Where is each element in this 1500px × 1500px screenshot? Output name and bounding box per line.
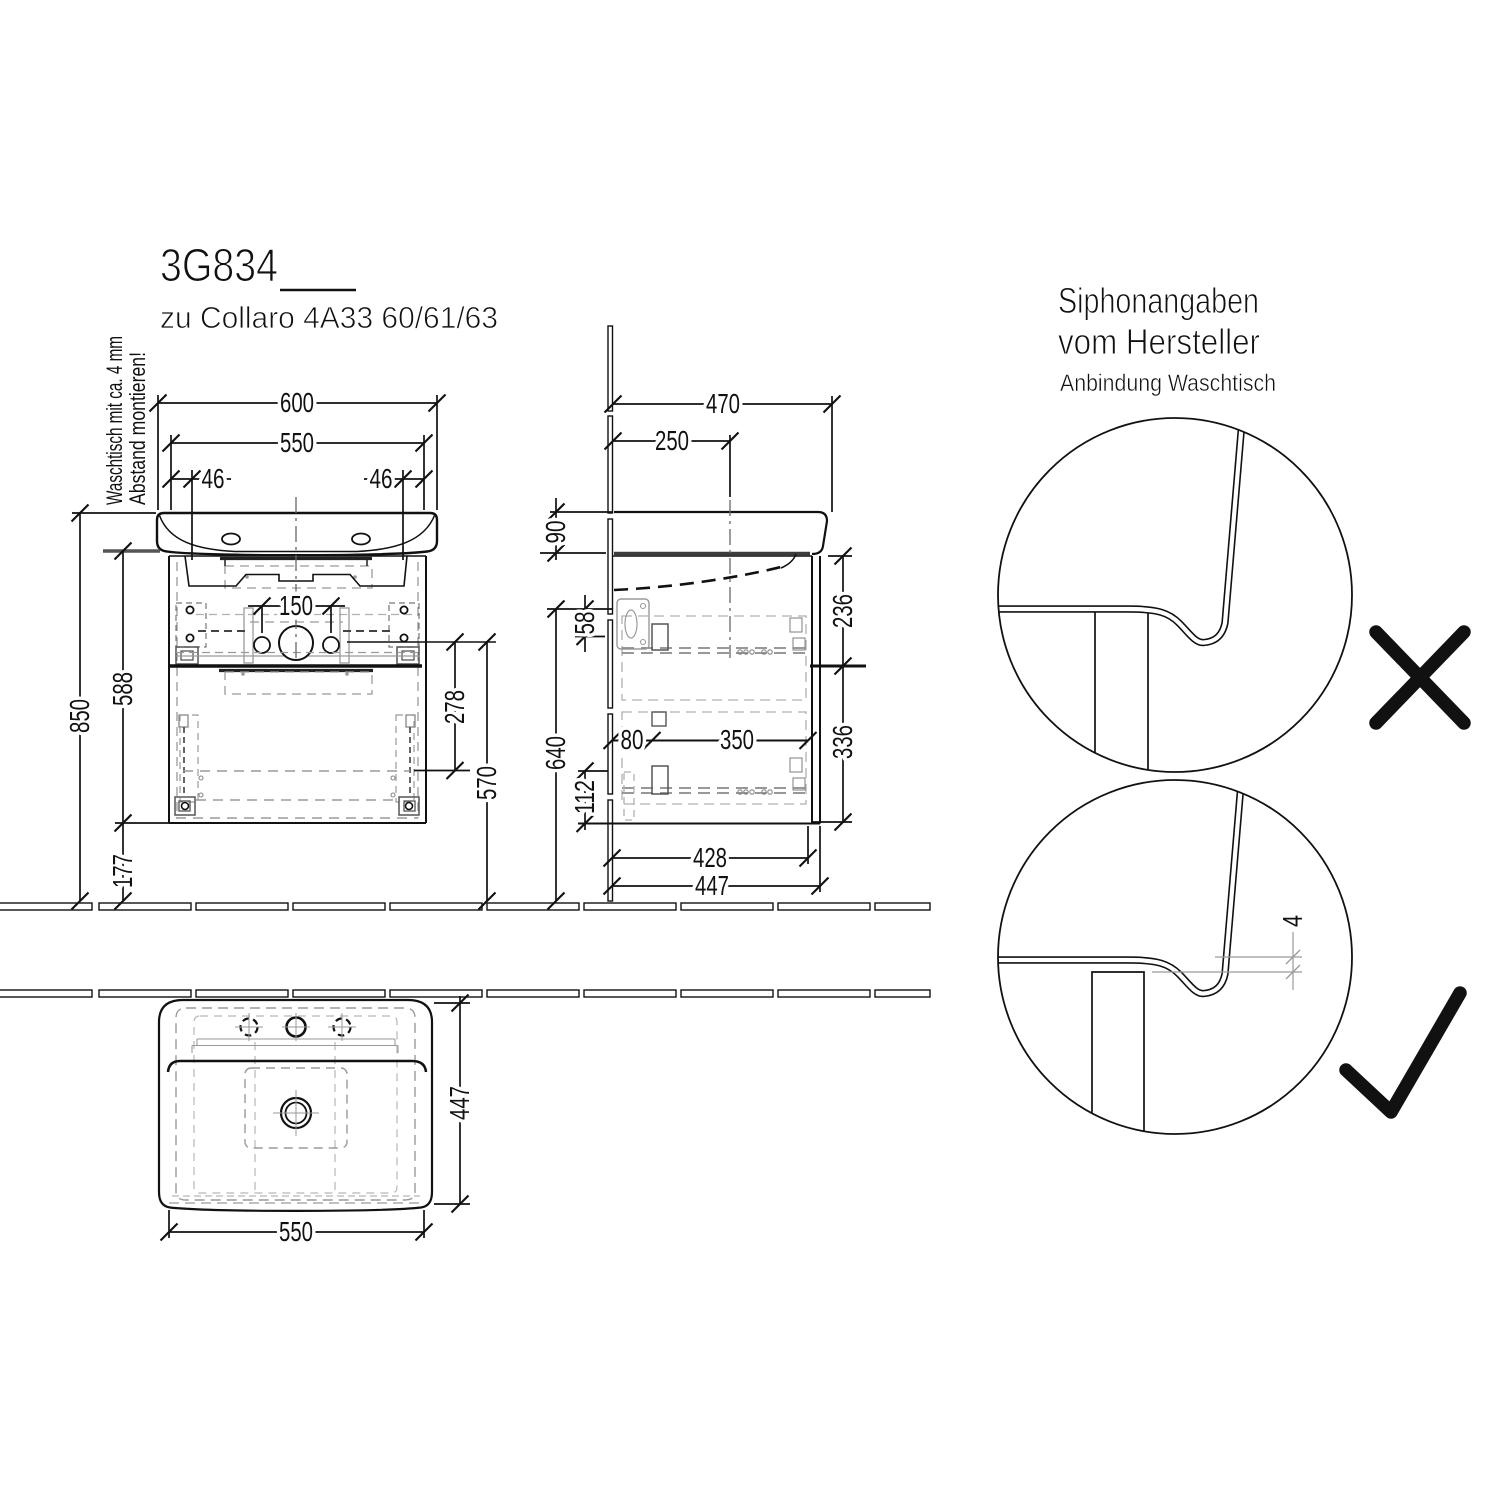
svg-text:250: 250 (655, 425, 689, 456)
svg-text:Waschtisch mit ca. 4 mm: Waschtisch mit ca. 4 mm (102, 336, 127, 505)
svg-text:550: 550 (279, 1216, 313, 1247)
svg-text:470: 470 (706, 388, 740, 419)
svg-text:Siphonangaben: Siphonangaben (1058, 280, 1259, 321)
svg-text:80: 80 (621, 724, 644, 755)
svg-text:570: 570 (471, 766, 502, 800)
svg-text:336: 336 (827, 725, 858, 759)
svg-text:112: 112 (569, 780, 600, 814)
svg-text:Anbindung Waschtisch: Anbindung Waschtisch (1060, 370, 1276, 397)
svg-text:58: 58 (569, 612, 600, 635)
svg-text:350: 350 (720, 724, 754, 755)
svg-text:588: 588 (107, 672, 138, 706)
svg-text:640: 640 (540, 736, 571, 770)
svg-text:46: 46 (202, 463, 225, 494)
svg-text:46: 46 (370, 463, 393, 494)
svg-text:zu Collaro 4A33 60/61/63: zu Collaro 4A33 60/61/63 (160, 300, 498, 335)
svg-text:3G834: 3G834 (160, 239, 278, 291)
svg-text:Abstand montieren!: Abstand montieren! (125, 352, 150, 505)
svg-text:vom Hersteller: vom Hersteller (1058, 321, 1260, 362)
svg-text:236: 236 (827, 594, 858, 628)
svg-text:447: 447 (695, 870, 729, 901)
svg-text:90: 90 (540, 521, 571, 544)
svg-text:600: 600 (280, 387, 314, 418)
svg-text:447: 447 (444, 1086, 475, 1120)
svg-text:4: 4 (1277, 915, 1308, 927)
svg-text:850: 850 (64, 699, 95, 733)
svg-text:428: 428 (693, 842, 727, 873)
svg-text:177: 177 (107, 854, 138, 888)
svg-text:550: 550 (280, 427, 314, 458)
svg-text:278: 278 (439, 690, 470, 724)
svg-text:150: 150 (279, 590, 313, 621)
